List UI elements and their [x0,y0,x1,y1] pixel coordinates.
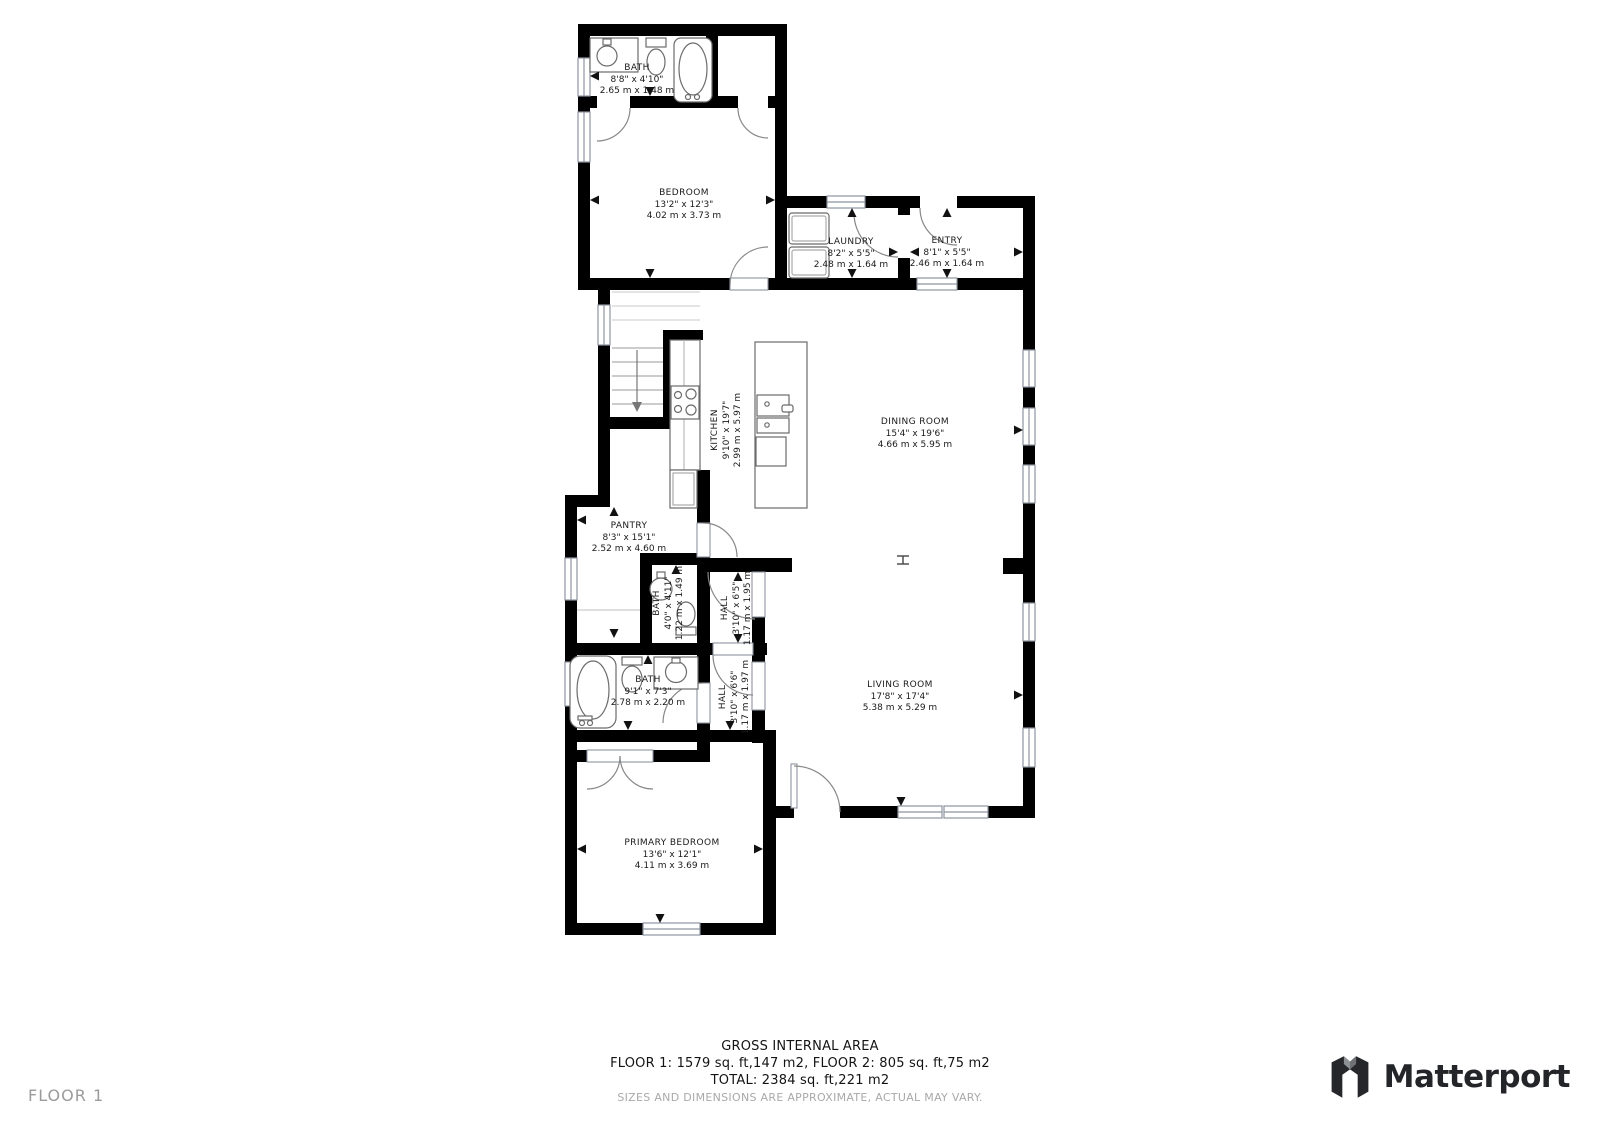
room-label-living-room: LIVING ROOM 17'8" x 17'4" 5.38 m x 5.29 … [863,680,937,715]
room-label-primary-bedroom: PRIMARY BEDROOM 13'6" x 12'1" 4.11 m x 3… [624,838,719,873]
window [827,196,865,208]
window [944,806,988,818]
gia-title: GROSS INTERNAL AREA [0,1038,1600,1055]
island-sink-icon [757,395,793,433]
bathtub-icon [570,656,616,728]
stair-direction-arrow-icon [632,402,642,412]
room-label-laundry: LAUNDRY 8'2" x 5'5" 2.48 m x 1.64 m [814,237,888,272]
window [1023,350,1035,387]
room-label-pantry: PANTRY 8'3" x 15'1" 2.52 m x 4.60 m [592,521,666,556]
floorplan-drawing [0,0,1600,1131]
room-label-bath-small: BATH 4'0" x 4'11" 1.22 m x 1.49 m [652,566,687,640]
window [898,806,942,818]
island-square-fixture [756,437,786,466]
room-label-entry: ENTRY 8'1" x 5'5" 2.46 m x 1.64 m [910,236,984,271]
window [917,278,957,290]
door-arc [738,108,768,138]
floor-number-label: FLOOR 1 [28,1086,104,1105]
base-cabinet [670,470,697,508]
window [643,923,700,935]
window [578,112,590,162]
room-label-hall-upper: HALL 3'10" x 6'5" 1.17 m x 1.95 m [720,571,755,645]
door-arc [597,108,630,141]
room-label-kitchen: KITCHEN 9'10" x 19'7" 2.99 m x 5.97 m [710,393,745,467]
room-label-bedroom: BEDROOM 13'2" x 12'3" 4.02 m x 3.73 m [647,188,721,223]
room-label-hall-lower: HALL 3'10" x 6'6" 1.17 m x 1.97 m [718,660,753,734]
cased-opening [752,662,765,710]
room-label-bath-main: BATH 9'1" x 7'3" 2.78 m x 2.20 m [611,675,685,710]
floorplan-page: BATH 8'8" x 4'10" 2.65 m x 1.48 m BEDROO… [0,0,1600,1131]
window [578,58,590,96]
beam-marker-icon [897,556,909,564]
window [565,558,577,600]
window [1023,603,1035,641]
window [1023,408,1035,445]
stove-icon [671,386,699,419]
window [598,305,610,345]
room-label-dining-room: DINING ROOM 15'4" x 19'6" 4.66 m x 5.95 … [878,417,952,452]
bathtub-icon [674,38,712,102]
matterport-brand: Matterport [1327,1054,1570,1100]
door-arc [794,766,840,812]
matterport-logo-text: Matterport [1384,1059,1570,1095]
window [1023,465,1035,503]
window [1023,728,1035,767]
room-label-bath-upper: BATH 8'8" x 4'10" 2.65 m x 1.48 m [600,63,674,98]
matterport-logo-icon [1327,1054,1373,1100]
